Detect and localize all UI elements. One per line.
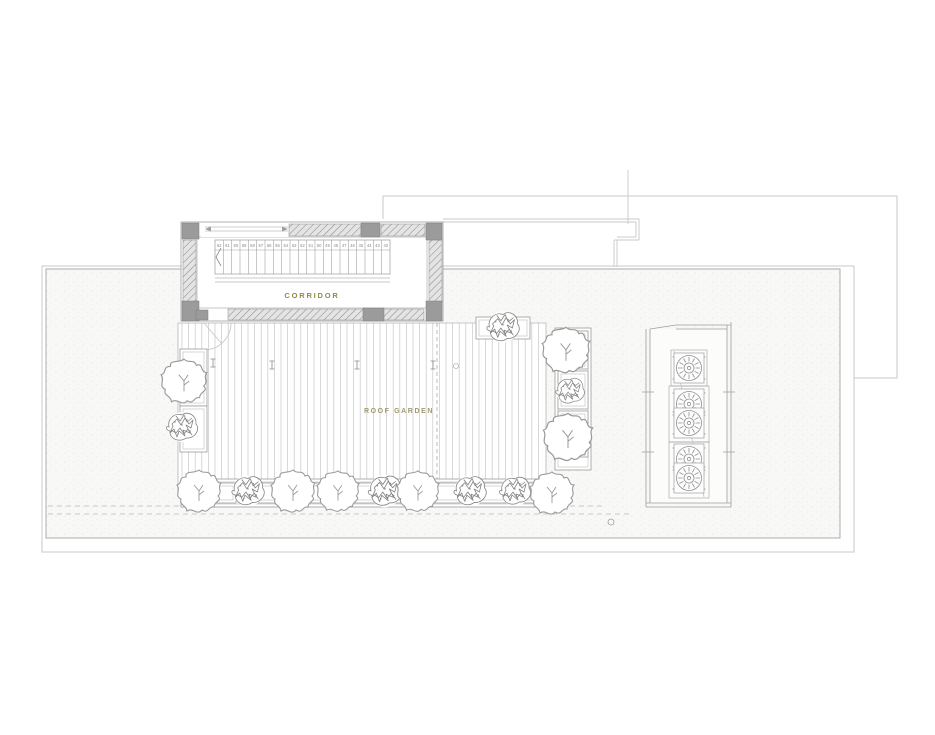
stair-tread-number: 56 (267, 243, 272, 248)
stair-tread-number: 43 (375, 243, 380, 248)
stair-tread-number: 52 (300, 243, 305, 248)
stair-tread-number: 59 (242, 243, 247, 248)
stair-tread-number: 57 (258, 243, 263, 248)
fan-enclosure (642, 322, 735, 507)
wall-hatch (228, 309, 424, 320)
deck-base (178, 322, 546, 492)
stair-tread-number: 54 (283, 243, 288, 248)
fan-unit (673, 408, 706, 438)
fan-unit (673, 463, 706, 493)
stair-tread-number: 47 (342, 243, 347, 248)
stair-tread-number: 62 (217, 243, 222, 248)
stair-tread-number: 45 (358, 243, 363, 248)
column (363, 308, 384, 321)
stair-tread-number: 42 (383, 243, 388, 248)
roof-garden-label: ROOF GARDEN (364, 408, 434, 415)
stair-tread-number: 49 (325, 243, 330, 248)
stair-tread-number: 51 (308, 243, 313, 248)
column (361, 223, 380, 237)
opening (201, 223, 288, 237)
roof-plan-drawing: ROOF GARDEN 6261605958575655545352515049… (0, 0, 935, 735)
wall-hatch (289, 224, 361, 236)
roof-garden-deck: ROOF GARDEN (178, 322, 546, 492)
corridor-block: 6261605958575655545352515049484746454443… (181, 219, 443, 322)
stair-tread-number: 58 (250, 243, 255, 248)
stair-tread-number: 44 (367, 243, 372, 248)
stair-tread-number: 46 (350, 243, 355, 248)
stair-tread-number: 61 (225, 243, 230, 248)
column (182, 223, 199, 239)
stair-tread-number: 55 (275, 243, 280, 248)
column (426, 223, 442, 240)
wall-hatch (183, 240, 196, 302)
stair-tread-number: 60 (233, 243, 238, 248)
corridor-label: CORRIDOR (284, 291, 339, 300)
wall-hatch (381, 224, 425, 236)
column (426, 301, 442, 321)
floor-plan-canvas: ROOF GARDEN 6261605958575655545352515049… (0, 0, 935, 735)
column (196, 310, 208, 320)
stair-tread-number: 50 (317, 243, 322, 248)
fan-units (673, 353, 706, 493)
stair-tread-number: 53 (292, 243, 297, 248)
fan-unit (673, 353, 706, 383)
stair-tread-number: 48 (333, 243, 338, 248)
wall-hatch (429, 240, 442, 302)
